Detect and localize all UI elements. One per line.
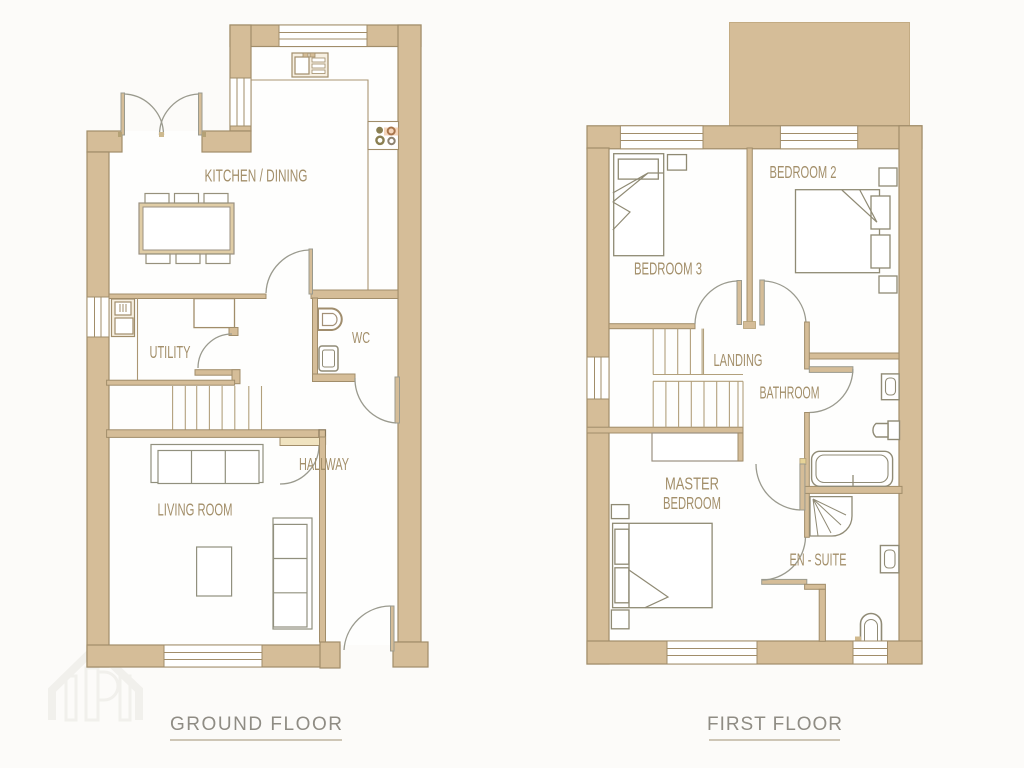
svg-text:FIRST FLOOR: FIRST FLOOR	[707, 714, 842, 735]
svg-text:BEDROOM 3: BEDROOM 3	[634, 259, 702, 279]
svg-text:GROUND FLOOR: GROUND FLOOR	[170, 714, 342, 735]
svg-text:EN - SUITE: EN - SUITE	[790, 550, 847, 570]
svg-text:MASTER: MASTER	[665, 474, 719, 494]
svg-text:BATHROOM: BATHROOM	[760, 383, 820, 403]
svg-text:WC: WC	[352, 330, 370, 347]
svg-text:BEDROOM 2: BEDROOM 2	[770, 162, 837, 182]
svg-text:BEDROOM: BEDROOM	[663, 493, 721, 513]
svg-text:LIVING ROOM: LIVING ROOM	[158, 500, 233, 520]
svg-text:KITCHEN / DINING: KITCHEN / DINING	[205, 166, 308, 186]
svg-text:UTILITY: UTILITY	[150, 342, 191, 362]
svg-text:LANDING: LANDING	[714, 350, 763, 370]
svg-text:HALLWAY: HALLWAY	[299, 454, 349, 474]
